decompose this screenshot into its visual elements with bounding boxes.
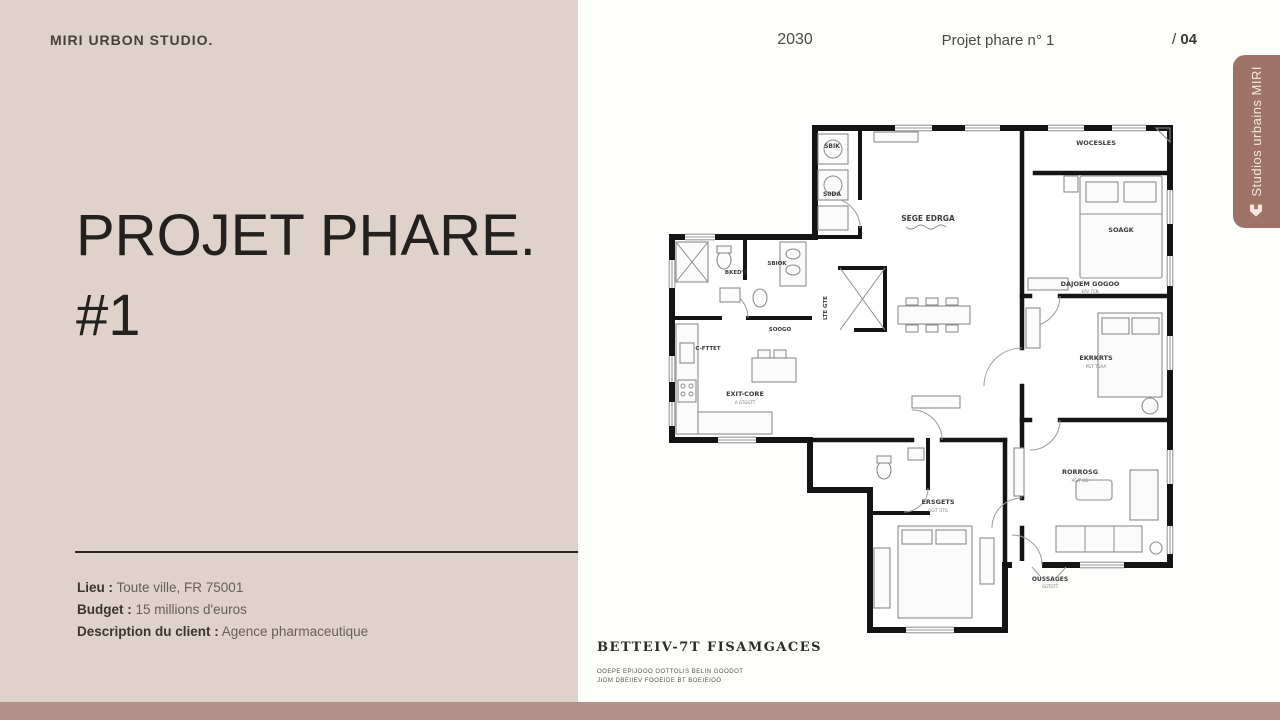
detail-budget: Budget : 15 millions d'euros	[77, 599, 368, 621]
side-tab-studios-urbains[interactable]: Studios urbains MIRI	[1233, 55, 1280, 228]
bottom-accent-bar	[0, 702, 1280, 720]
project-details: Lieu : Toute ville, FR 75001 Budget : 15…	[77, 577, 368, 642]
page-indicator: / 04	[1172, 31, 1197, 48]
detail-lieu: Lieu : Toute ville, FR 75001	[77, 577, 368, 599]
plan-room-label: WOCESLES	[1076, 139, 1116, 147]
plan-room-label: GGIT GTG	[928, 508, 948, 513]
brand-name: MIRI URBON STUDIO.	[50, 32, 213, 48]
side-tab-label: Studios urbains MIRI	[1249, 66, 1264, 197]
plan-room-label: SEGE EDRGA	[901, 214, 955, 223]
plan-room-label: EXIT-CORE	[726, 390, 764, 398]
plan-room-label: EKRKRTS	[1079, 354, 1113, 362]
plan-room-label: PGT TGAA	[1086, 364, 1106, 369]
plan-room-label: S0DA	[823, 191, 841, 198]
plan-room-label: DAJOEM GOGOO	[1061, 280, 1120, 288]
floor-plan-drawing: SBIK S0DA SEGE EDRGA WOCESLES SOAGK DAJO…	[660, 118, 1200, 653]
header-year: 2030	[745, 31, 845, 49]
plan-caption-line: OOEPE EPIJOOO OOTTOLIS BELIN GOODOT	[597, 668, 822, 677]
plan-room-label: AGIT GG	[1072, 478, 1089, 483]
plan-room-label: GGTGTT	[1042, 584, 1059, 589]
divider-line	[75, 551, 578, 553]
plan-room-label: ERSGETS	[921, 498, 954, 506]
slide-canvas: MIRI URBON STUDIO. PROJET PHARE. #1 Lieu…	[0, 0, 1280, 720]
floor-plan: SBIK S0DA SEGE EDRGA WOCESLES SOAGK DAJO…	[660, 118, 1200, 653]
plan-room-label: LTE GTE	[823, 296, 829, 320]
page-title: PROJET PHARE. #1	[76, 196, 536, 356]
plan-room-label: RORROSG	[1062, 468, 1098, 476]
plan-room-label: C-FTTET	[695, 346, 721, 352]
plan-room-label: SOOGO	[769, 327, 792, 333]
plan-caption-title: BETTEIV-7T FISAMGACES	[597, 640, 822, 655]
home-icon	[1250, 203, 1264, 217]
plan-room-label: BKED'T	[725, 270, 747, 276]
plan-caption: BETTEIV-7T FISAMGACES OOEPE EPIJOOO OOTT…	[597, 640, 822, 686]
page-title-line2: #1	[76, 283, 141, 348]
plan-room-label: SBIOK	[767, 261, 787, 267]
plan-room-label: SOAGK	[1108, 226, 1134, 234]
plan-room-label: EAV TCN	[1081, 289, 1098, 294]
plan-caption-line: JIOM DBEIIEV FOOEIDE BT BOEIEIOO	[597, 677, 822, 686]
page-title-line1: PROJET PHARE.	[76, 203, 536, 268]
plan-room-label: OUSSAGES	[1032, 576, 1068, 583]
header-subtitle: Projet phare n° 1	[898, 32, 1098, 49]
plan-room-label: A GTGGTT	[735, 400, 756, 405]
detail-description: Description du client : Agence pharmaceu…	[77, 621, 368, 643]
plan-room-label: SBIK	[824, 143, 840, 150]
